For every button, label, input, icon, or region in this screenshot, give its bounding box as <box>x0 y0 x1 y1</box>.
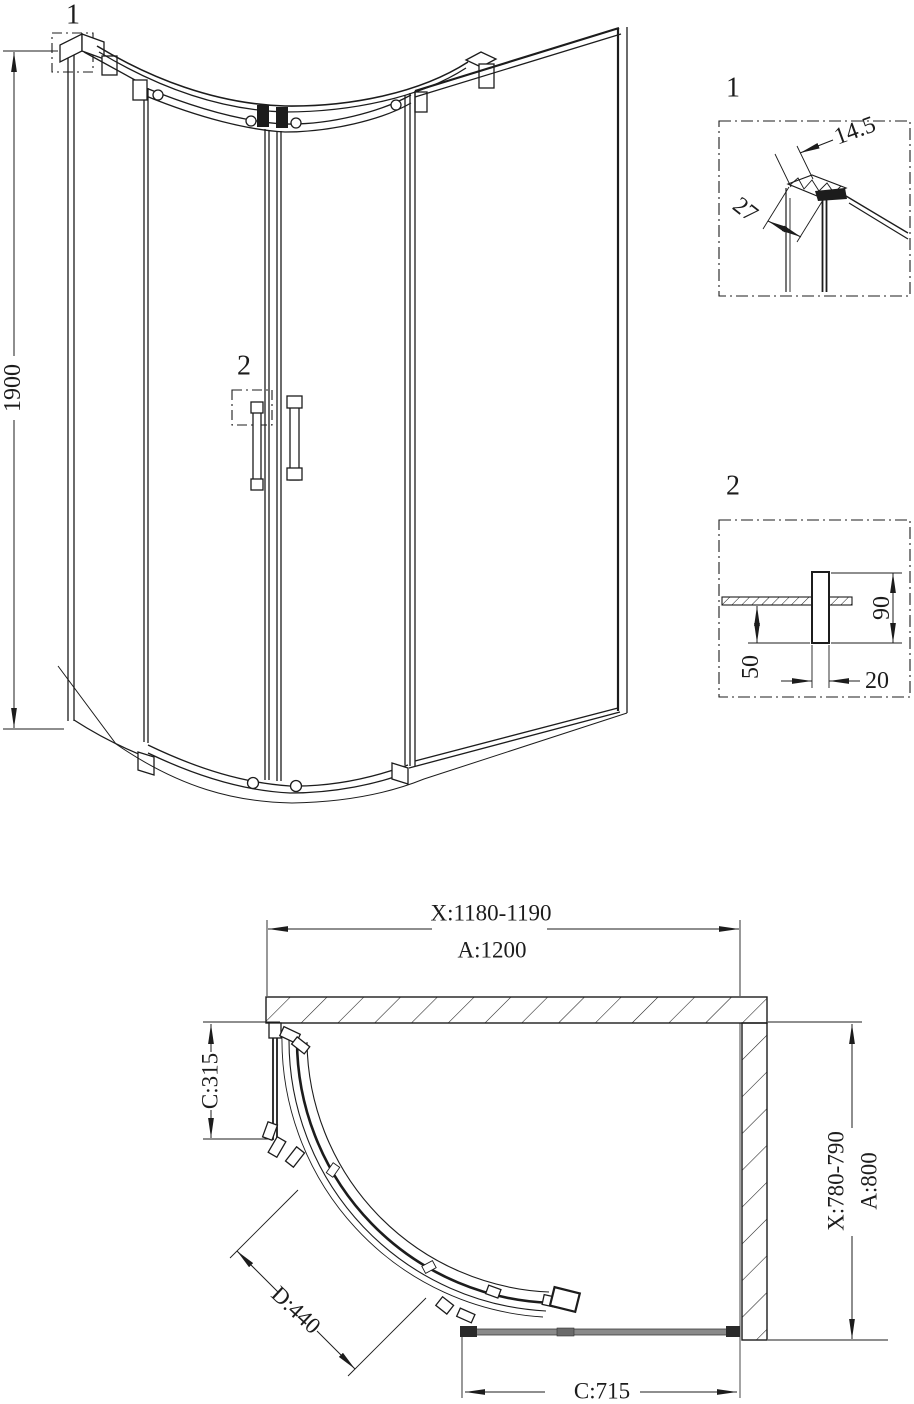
detail-2-label: 2 <box>726 471 740 502</box>
shower-enclosure-drawing: 1900 1 2 <box>0 0 914 1404</box>
plan-front-glass <box>462 1329 738 1335</box>
detail-2-section <box>722 572 852 643</box>
detail-1-dimensions: 14.5 27 <box>728 112 880 242</box>
plan-width-overall-text: A:1200 <box>458 938 527 963</box>
plan-width-dimension: X:1180-1190 A:1200 <box>267 901 740 1399</box>
plan-front-text: C:715 <box>574 1379 630 1404</box>
detail-view-1: 1 14.5 27 <box>719 73 910 297</box>
plan-right-wall <box>742 1023 767 1340</box>
plan-return-text: C:315 <box>198 1053 223 1109</box>
detail-2-drop-text: 50 <box>738 655 764 679</box>
detail-1-profile <box>786 175 908 292</box>
detail-callout-2: 2 <box>232 351 272 426</box>
plan-door-text: D:440 <box>266 1281 325 1338</box>
height-dim-text: 1900 <box>0 364 26 412</box>
detail-2-height-text: 90 <box>869 596 895 620</box>
detail-1-label: 1 <box>726 73 740 104</box>
callout-2-label: 2 <box>237 351 251 382</box>
detail-1-depth-text: 27 <box>728 192 763 227</box>
height-dimension: 1900 <box>0 51 64 729</box>
plan-front-dimension: C:715 <box>462 1337 737 1404</box>
detail-1-width-text: 14.5 <box>831 112 879 151</box>
plan-depth-overall-text: A:800 <box>857 1152 882 1210</box>
callout-1-label: 1 <box>66 0 80 31</box>
plan-depth-dimension: X:780-790 A:800 <box>768 1022 888 1340</box>
plan-width-minmax-text: X:1180-1190 <box>431 901 552 926</box>
elevation-view: 1900 1 2 <box>0 0 627 803</box>
plan-depth-minmax-text: X:780-790 <box>824 1131 849 1231</box>
detail-2-width-text: 20 <box>865 668 889 694</box>
detail-view-2: 2 90 50 20 <box>719 471 910 698</box>
plan-enclosure <box>263 1023 740 1337</box>
technical-drawing-canvas: 1900 1 2 <box>0 0 914 1404</box>
plan-view: X:1180-1190 A:1200 X:780-790 A:800 C:315 <box>198 901 889 1404</box>
plan-door-dimension: D:440 <box>230 1190 426 1376</box>
enclosure-3d <box>58 27 627 803</box>
plan-top-wall <box>266 997 767 1023</box>
